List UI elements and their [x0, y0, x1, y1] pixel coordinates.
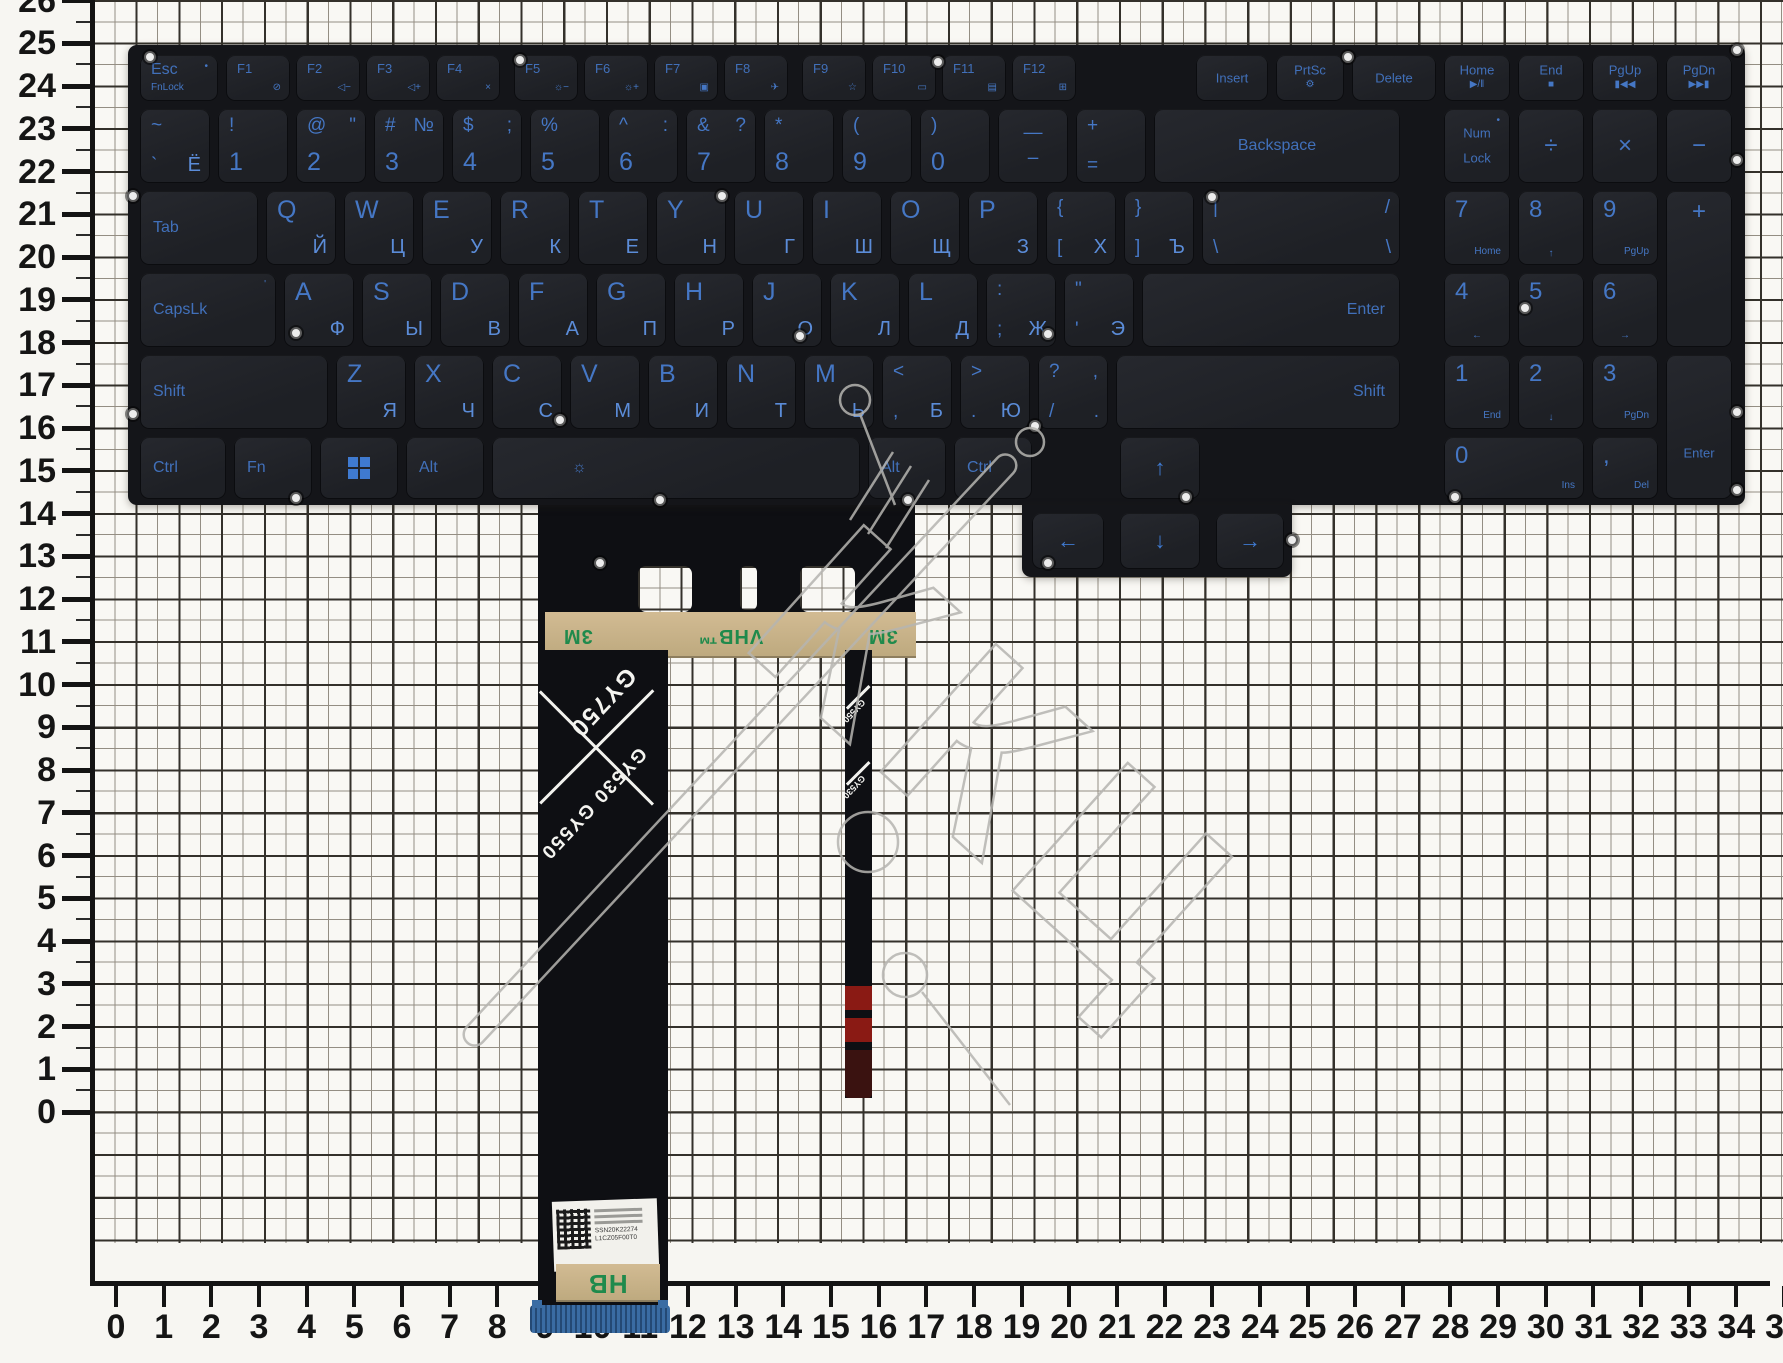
ruler-tick [62, 682, 92, 687]
key-legend: ☼ [572, 460, 587, 476]
ruler-tick [114, 1286, 118, 1307]
key-legend: \ [1213, 238, 1218, 257]
ruler-tick [62, 212, 92, 217]
ruler-tick [1687, 1286, 1691, 1307]
key-legend: В [488, 319, 501, 339]
key-legend: Ctrl [967, 460, 992, 476]
key-legend: ' [1075, 320, 1079, 339]
key-legend: ↑ [1549, 249, 1554, 259]
connector-tab [532, 1300, 542, 1308]
key-legend: 0 [1455, 444, 1468, 468]
ruler-tick [1496, 1286, 1500, 1307]
screw-hole [902, 494, 914, 506]
key-lctrl: Ctrl [140, 437, 226, 499]
screw-hole [1342, 51, 1354, 63]
key-legend: ' [264, 280, 266, 290]
key-b: BИ [648, 355, 718, 429]
ruler-tick [209, 1286, 213, 1307]
ruler-number-left: 18 [2, 324, 56, 362]
key-legend: PgUp [1624, 247, 1649, 257]
key-4: $;4 [452, 109, 522, 183]
key-6: ^:6 [608, 109, 678, 183]
key-legend: Э [1111, 319, 1125, 339]
ruler-number-left: 3 [2, 965, 56, 1003]
screw-hole [932, 56, 944, 68]
backing-cutout [800, 566, 855, 612]
ruler-tick [62, 468, 92, 473]
key-8: *8 [764, 109, 834, 183]
thin-cable-red-stripe [845, 1018, 872, 1042]
key-win [320, 437, 398, 499]
key-legend: ▶▶▮ [1689, 80, 1710, 90]
screw-hole [1042, 557, 1054, 569]
key-legend: F9 [813, 62, 828, 75]
key-legend: % [541, 116, 558, 135]
key-legend: Я [383, 401, 397, 421]
key-r: RК [500, 191, 570, 265]
key-f7: F7▣ [654, 55, 718, 101]
key-legend: E [433, 198, 450, 223]
key-legend: , [1093, 362, 1098, 381]
key-legend: — [1024, 123, 1043, 142]
key-legend: 5 [541, 150, 555, 175]
ruler-number-left: 17 [2, 366, 56, 404]
key-legend: Р [722, 319, 735, 339]
key-legend: Tab [153, 220, 179, 236]
key-legend: Alt [419, 460, 438, 476]
key-legend: , [893, 402, 898, 421]
key-legend: A [295, 280, 312, 305]
ruler-tick [62, 981, 92, 986]
key-minus: —– [998, 109, 1068, 183]
tape-print-3m: 3M [868, 624, 898, 647]
screw-hole [514, 54, 526, 66]
key-legend: Ё [188, 155, 201, 175]
screw-hole [794, 330, 806, 342]
key-legend: Н [703, 237, 717, 257]
ruler-number-left: 11 [2, 623, 56, 661]
key-f12: F12⊞ [1012, 55, 1076, 101]
key-legend: J [763, 280, 776, 305]
key-np-mul: × [1592, 109, 1658, 183]
backing-cutout [638, 566, 692, 612]
key-np6: 6→ [1592, 273, 1658, 347]
key-legend: Insert [1216, 72, 1249, 85]
ruler-number-left: 13 [2, 537, 56, 575]
key-legend: Enter [1683, 446, 1714, 459]
key-y: YН [656, 191, 726, 265]
key-period: >.Ю [960, 355, 1030, 429]
key-legend: F8 [735, 62, 750, 75]
key-legend: 2 [307, 150, 321, 175]
key-enter: Enter [1142, 273, 1400, 347]
key-rbracket: }]Ъ [1124, 191, 1194, 265]
key-legend: H [685, 280, 703, 305]
key-q: QЙ [266, 191, 336, 265]
key-np3: 3PgDn [1592, 355, 1658, 429]
thin-cable-red-stripe [845, 986, 872, 1010]
ruler-number-left: 14 [2, 495, 56, 533]
key-caps: CapsLk' [140, 273, 276, 347]
key-pgup: PgUp▮◀◀ [1592, 55, 1658, 101]
label-blurred-line [595, 1220, 643, 1225]
key-legend: L [919, 280, 933, 305]
key-legend: ☆ [848, 83, 857, 93]
screw-hole [290, 492, 302, 504]
key-legend: F3 [377, 62, 392, 75]
ruler-number-left: 22 [2, 153, 56, 191]
key-down: ↓ [1120, 513, 1200, 569]
key-legend: & [697, 116, 710, 135]
key-legend: Backspace [1238, 138, 1316, 154]
key-legend: W [355, 198, 379, 223]
key-legend: ☼+ [624, 83, 639, 93]
key-delete: Delete [1352, 55, 1436, 101]
key-np0: 0Ins [1444, 437, 1584, 499]
key-legend: − [1692, 134, 1706, 158]
key-legend: FnLock [151, 83, 184, 93]
ruler-tick [62, 169, 92, 174]
key-legend: ` [151, 156, 157, 175]
key-f3: F3◁+ [366, 55, 430, 101]
screw-hole [654, 494, 666, 506]
key-legend: С [539, 401, 553, 421]
key-legend: S [373, 280, 390, 305]
key-legend: ■ [1548, 80, 1554, 90]
key-tab: Tab [140, 191, 258, 265]
key-legend: 4 [1455, 280, 1468, 304]
key-legend: М [614, 401, 631, 421]
key-f4: F4× [436, 55, 500, 101]
key-legend: F1 [237, 62, 252, 75]
key-legend: 7 [1455, 198, 1468, 222]
key-quote: "'Э [1064, 273, 1134, 347]
ruler-tick [62, 255, 92, 260]
key-f9: F9☆ [802, 55, 866, 101]
key-legend: • [1496, 116, 1500, 126]
key-n: NТ [726, 355, 796, 429]
key-legend: ▣ [700, 83, 709, 93]
key-legend: ⊞ [1059, 83, 1067, 93]
ruler-number-left: 8 [2, 751, 56, 789]
key-legend: ▶/‖ [1470, 80, 1485, 90]
ruler-tick [400, 1286, 404, 1307]
screw-hole [716, 190, 728, 202]
key-legend: F6 [595, 62, 610, 75]
ruler-tick [62, 725, 92, 730]
key-legend: ] [1135, 238, 1140, 257]
key-legend: 3 [1603, 362, 1616, 386]
key-lshift: Shift [140, 355, 328, 429]
tape-print-hb: HB [588, 1268, 628, 1299]
screw-hole [144, 51, 156, 63]
key-legend: Ins [1562, 481, 1575, 491]
key-7: &?7 [686, 109, 756, 183]
key-legend: F7 [665, 62, 680, 75]
ruler-tick [1401, 1286, 1405, 1307]
key-legend: M [815, 362, 836, 387]
ruler-tick [1020, 1286, 1024, 1307]
key-z: ZЯ [336, 355, 406, 429]
key-lalt: Alt [406, 437, 484, 499]
key-legend: ! [229, 116, 234, 135]
ruler-number-left: 12 [2, 580, 56, 618]
key-c: CС [492, 355, 562, 429]
ruler-tick [62, 768, 92, 773]
key-legend: ↓ [1155, 530, 1166, 552]
label-blurred-line [594, 1208, 642, 1213]
key-legend: } [1135, 198, 1141, 217]
cable-connector [530, 1305, 670, 1333]
ruler-tick [62, 297, 92, 302]
key-legend: U [745, 198, 763, 223]
ruler-tick [1734, 1286, 1738, 1307]
key-right: → [1216, 513, 1284, 569]
key-legend: ^ [619, 116, 628, 135]
ruler-tick [495, 1286, 499, 1307]
key-legend: ← [1057, 530, 1079, 552]
key-legend: : [997, 280, 1002, 299]
key-d: DВ [440, 273, 510, 347]
ruler-tick [62, 84, 92, 89]
key-legend: Shift [1353, 384, 1385, 400]
key-legend: Shift [153, 384, 185, 400]
key-end: End■ [1518, 55, 1584, 101]
key-legend: Fn [247, 460, 266, 476]
key-p: PЗ [968, 191, 1038, 265]
connector-tab [658, 1300, 668, 1308]
key-np-dot: ,Del [1592, 437, 1658, 499]
key-legend: " [349, 116, 356, 135]
key-u: UГ [734, 191, 804, 265]
key-slash: ?,/. [1038, 355, 1108, 429]
ruler-tick [62, 1024, 92, 1029]
key-legend: Г [784, 237, 795, 257]
key-legend: → [1239, 530, 1261, 552]
key-legend: ~ [151, 116, 162, 135]
key-legend: R [511, 198, 529, 223]
key-2: @"2 [296, 109, 366, 183]
key-f6: F6☼+ [584, 55, 648, 101]
ruler-number-left: 7 [2, 794, 56, 832]
windows-logo-icon [348, 457, 370, 479]
key-legend: 5 [1529, 280, 1542, 304]
key-o: OЩ [890, 191, 960, 265]
key-legend: Esc [151, 62, 178, 78]
key-legend: F11 [953, 62, 974, 75]
key-np7: 7Home [1444, 191, 1510, 265]
ruler-tick [1163, 1286, 1167, 1307]
ruler-number-left: 0 [2, 1093, 56, 1131]
key-legend: Д [955, 319, 969, 339]
ruler-number-bottom: 35 [1752, 1308, 1783, 1346]
key-legend: ✈ [771, 83, 779, 93]
key-f: FА [518, 273, 588, 347]
key-1: !1 [218, 109, 288, 183]
key-legend: B [659, 362, 676, 387]
key-f2: F2◁− [296, 55, 360, 101]
key-s: SЫ [362, 273, 432, 347]
key-legend: T [589, 198, 604, 223]
ruler-tick [1591, 1286, 1595, 1307]
key-legend: Ь [852, 401, 865, 421]
ruler-tick [62, 126, 92, 131]
key-legend: F12 [1023, 62, 1045, 75]
ruler-tick [1115, 1286, 1119, 1307]
key-legend: : [663, 116, 668, 135]
key-legend: № [414, 116, 434, 135]
key-legend: F5 [525, 62, 540, 75]
screw-hole [1286, 534, 1298, 546]
key-legend: × [1618, 134, 1632, 158]
ruler-tick [62, 0, 92, 3]
key-legend: End [1483, 411, 1501, 421]
ruler-tick [1306, 1286, 1310, 1307]
label-serial-number: L1CZ05F00T0 [595, 1234, 654, 1244]
key-legend: = [1087, 156, 1098, 175]
ruler-number-left: 10 [2, 666, 56, 704]
key-np-sub: − [1666, 109, 1732, 183]
key-legend: * [775, 116, 782, 135]
key-legend: F [529, 280, 544, 305]
key-legend: • [204, 62, 208, 72]
key-legend: D [451, 280, 469, 305]
key-legend: + [1087, 116, 1098, 135]
key-legend: И [695, 401, 709, 421]
key-legend: Alt [881, 460, 900, 476]
key-numlock: NumLock• [1444, 109, 1510, 183]
key-tilde: ~`Ё [140, 109, 210, 183]
key-legend: Ctrl [153, 460, 178, 476]
key-legend: . [1094, 402, 1099, 421]
screw-hole [594, 557, 606, 569]
ruler-number-left: 21 [2, 195, 56, 233]
key-legend: " [1075, 280, 1082, 299]
qr-code [556, 1209, 591, 1250]
ruler-left-axis-line [90, 0, 95, 1286]
key-legend: А [566, 319, 579, 339]
key-np9: 9PgUp [1592, 191, 1658, 265]
key-legend: ☼− [554, 83, 569, 93]
key-legend: Delete [1375, 72, 1413, 85]
key-legend: / [1385, 198, 1390, 217]
key-legend: – [1028, 148, 1039, 167]
label-blurred-line [594, 1214, 642, 1219]
key-legend: ; [507, 116, 512, 135]
key-legend: N [737, 362, 755, 387]
ruler-tick [781, 1286, 785, 1307]
key-legend: + [1692, 200, 1706, 224]
key-legend: 8 [775, 150, 789, 175]
key-legend: ) [931, 116, 937, 135]
ruler-number-left: 23 [2, 110, 56, 148]
key-legend: O [901, 198, 920, 223]
ruler-tick [1353, 1286, 1357, 1307]
ruler-tick [448, 1286, 452, 1307]
key-legend: У [470, 237, 483, 257]
key-legend: ↓ [1549, 413, 1554, 423]
screw-hole [1731, 154, 1743, 166]
key-e: EУ [422, 191, 492, 265]
screw-hole [127, 408, 139, 420]
key-legend: 1 [229, 150, 243, 175]
key-legend: ← [1472, 331, 1482, 341]
ruler-tick [62, 554, 92, 559]
ruler-number-left: 25 [2, 24, 56, 62]
ruler-tick [734, 1286, 738, 1307]
ruler-number-left: 1 [2, 1050, 56, 1088]
key-lbracket: {[Х [1046, 191, 1116, 265]
key-f11: F11▤ [942, 55, 1006, 101]
key-legend: G [607, 280, 626, 305]
ruler-number-left: 24 [2, 67, 56, 105]
key-x: XЧ [414, 355, 484, 429]
ruler-tick [829, 1286, 833, 1307]
key-legend: K [841, 280, 858, 305]
ruler-tick [352, 1286, 356, 1307]
key-legend: Enter [1347, 302, 1385, 318]
key-np1: 1End [1444, 355, 1510, 429]
key-legend: PgDn [1624, 411, 1649, 421]
ruler-tick [1544, 1286, 1548, 1307]
key-legend: F2 [307, 62, 322, 75]
key-pgdn: PgDn▶▶▮ [1666, 55, 1732, 101]
screw-hole [1731, 484, 1743, 496]
key-np-enter: Enter [1666, 355, 1732, 499]
key-m: MЬ [804, 355, 874, 429]
key-legend: ▤ [988, 83, 997, 93]
key-np2: 2↓ [1518, 355, 1584, 429]
key-legend: Щ [932, 237, 951, 257]
key-5: %5 [530, 109, 600, 183]
ruler-tick [62, 597, 92, 602]
ruler-tick [62, 639, 92, 644]
key-legend: ▭ [918, 83, 927, 93]
ruler-tick [257, 1286, 261, 1307]
key-legend: ⚙ [1306, 80, 1315, 90]
screw-hole [1731, 406, 1743, 418]
key-legend: Ъ [1169, 237, 1185, 257]
ruler-number-left: 2 [2, 1008, 56, 1046]
ruler-tick [62, 896, 92, 901]
ruler-tick [1067, 1286, 1071, 1307]
key-legend: X [425, 362, 442, 387]
key-legend: { [1057, 198, 1063, 217]
key-prtsc: PrtSc⚙ [1276, 55, 1344, 101]
screw-hole [1519, 302, 1531, 314]
key-legend: Ф [330, 319, 345, 339]
screw-hole [1180, 491, 1192, 503]
key-up: ↑ [1120, 437, 1200, 499]
ruler-tick [62, 41, 92, 46]
key-t: TЕ [578, 191, 648, 265]
part-number-label: SSN20K22274 L1CZ05F00T0 [552, 1198, 659, 1272]
key-rshift: Shift [1116, 355, 1400, 429]
screw-hole [1029, 420, 1041, 432]
key-legend: Q [277, 198, 296, 223]
key-g: GП [596, 273, 666, 347]
ruler-tick [924, 1286, 928, 1307]
key-legend: Ц [390, 237, 405, 257]
thin-cable-tip [845, 1050, 872, 1098]
key-legend: П [643, 319, 657, 339]
key-legend: ( [853, 116, 859, 135]
key-legend: Del [1634, 481, 1649, 491]
key-backslash: |/\\ [1202, 191, 1400, 265]
ruler-number-left: 15 [2, 452, 56, 490]
key-legend: Й [313, 237, 327, 257]
key-space: ☼ [492, 437, 860, 499]
